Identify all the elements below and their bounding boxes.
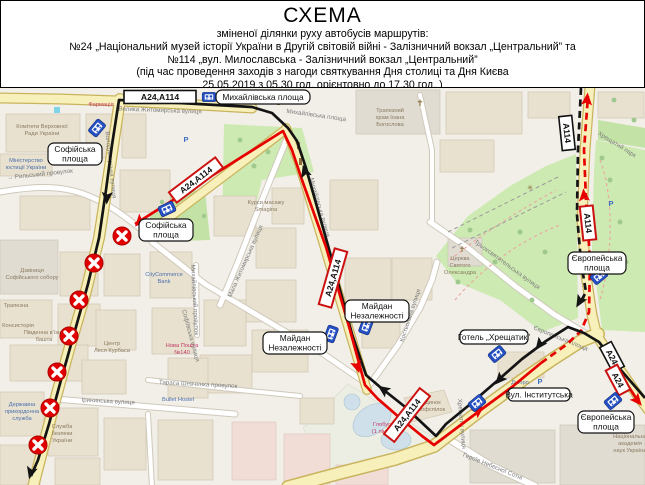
svg-text:Нова Пошта: Нова Пошта [166,343,199,349]
svg-text:академія: академія [618,441,642,447]
bus-stop-icon [202,92,216,101]
svg-text:Державна: Державна [9,402,36,408]
svg-text:Трапезний: Трапезний [376,107,404,114]
svg-text:Вул. Інститутська: Вул. Інститутська [505,390,573,400]
svg-text:CityCommerce: CityCommerce [145,272,183,278]
svg-text:✝: ✝ [416,98,424,108]
route-sign-uzviz-red: А114 [580,205,596,240]
svg-text:Smagina: Smagina [255,207,278,213]
svg-text:Р: Р [608,199,613,208]
svg-text:Олександра: Олександра [444,270,477,276]
svg-text:Незалежності: Незалежності [268,343,321,353]
svg-text:Bullet Hostel: Bullet Hostel [162,397,194,403]
svg-text:Фармація: Фармація [88,102,113,108]
svg-text:служба: служба [12,416,32,422]
svg-text:України: України [52,438,72,444]
svg-text:Bank: Bank [158,279,171,285]
khreshchatyi-park-green [592,140,645,332]
svg-text:Святого: Святого [450,263,471,269]
scheme-title: СХЕМА [1,4,644,28]
place-label-maidan-left: Майдан Незалежності [263,332,327,354]
svg-text:площа: площа [153,230,179,240]
svg-text:площа: площа [62,154,88,164]
svg-text:Європейська: Європейська [581,412,632,422]
transit-minor-icon [54,107,60,113]
svg-text:Національна: Національна [613,434,645,440]
svg-text:Р: Р [183,135,188,144]
svg-text:площа: площа [593,422,619,432]
route-sign-uzviz-black: А114 [559,115,575,150]
svg-text:прикордонна: прикордонна [5,409,40,415]
place-label-instytutska: Вул. Інститутська [505,388,573,401]
svg-text:✳: ✳ [527,184,533,192]
scheme-page: СХЕМА зміненої ділянки руху автобусів ма… [0,0,645,485]
svg-text:башта: башта [36,337,53,343]
place-label-sofiivska-square-lower: Софійська площа [139,219,193,241]
header-route114: №114 „вул. Милославська - Залізничний во… [1,54,644,67]
svg-text:безпеки: безпеки [52,431,73,437]
svg-text:Богослова: Богослова [376,122,404,128]
place-label-evropeiska-lower: Європейська площа [578,411,634,433]
svg-text:Комітети Верховної: Комітети Верховної [16,124,68,130]
place-label-evropeiska-upper: Європейська площа [568,252,626,274]
svg-text:площа: площа [584,263,610,273]
svg-text:Софійського собору: Софійського собору [5,274,58,281]
svg-text:Курси масажу: Курси масажу [248,200,285,206]
route-sign-top: А24,А114 [124,91,196,104]
header-subtitle: зміненої ділянки руху автобусів маршруті… [1,28,644,41]
place-label-maidan-right: Майдан Незалежності [345,300,409,322]
svg-text:храм Іоана: храм Іоана [376,115,406,121]
map-canvas: ✳ ✝ ✝ Велика Житомирська вулиця Володими… [0,88,645,485]
svg-text:Церква: Церква [450,256,470,262]
svg-text:Ради України: Ради України [25,131,60,137]
svg-text:А114: А114 [582,212,594,233]
scheme-header: СХЕМА зміненої ділянки руху автобусів ма… [0,0,645,88]
place-label-hotel-khreshchatyk: Готель „Хрещатик” [458,330,530,344]
svg-text:Майдан: Майдан [280,333,311,343]
svg-text:Міністерство: Міністерство [9,158,43,164]
svg-text:№140: №140 [174,350,190,356]
svg-text:Леся Курбаса: Леся Курбаса [94,348,131,354]
svg-text:Софійська: Софійська [54,144,96,154]
svg-text:Європейська: Європейська [572,253,623,263]
svg-text:Готель „Хрещатик”: Готель „Хрещатик” [458,332,530,342]
svg-text:юстиції України: юстиції України [6,165,47,171]
header-route24: №24 „Національний музей історії України … [1,41,644,54]
place-label-sofiivska-square-upper: Софійська площа [48,143,102,165]
svg-text:✝: ✝ [459,245,466,254]
svg-text:Служба: Служба [52,424,73,430]
svg-text:Південна в'їзна: Південна в'їзна [24,330,65,336]
svg-text:Софійська: Софійська [145,220,187,230]
svg-text:Майдан: Майдан [362,301,393,311]
svg-text:Михайлівська площа: Михайлівська площа [222,92,304,102]
svg-text:Трапезна: Трапезна [4,303,29,309]
svg-text:наук України: наук України [613,448,645,454]
svg-text:Дзвіниця: Дзвіниця [20,268,44,274]
header-event: (під час проведення заходів з нагоди свя… [1,66,644,79]
svg-text:Консисторія: Консисторія [2,323,34,329]
svg-text:А24,А114: А24,А114 [141,92,179,102]
city-map: ✳ ✝ ✝ Велика Житомирська вулиця Володими… [0,88,645,485]
svg-text:Незалежності: Незалежності [350,311,403,321]
place-label-mykhailivska-square: Михайлівська площа [216,90,310,104]
fountain [344,394,360,410]
svg-text:Центр: Центр [104,341,120,347]
svg-text:Р: Р [537,377,542,386]
svg-text:А114: А114 [561,122,573,143]
